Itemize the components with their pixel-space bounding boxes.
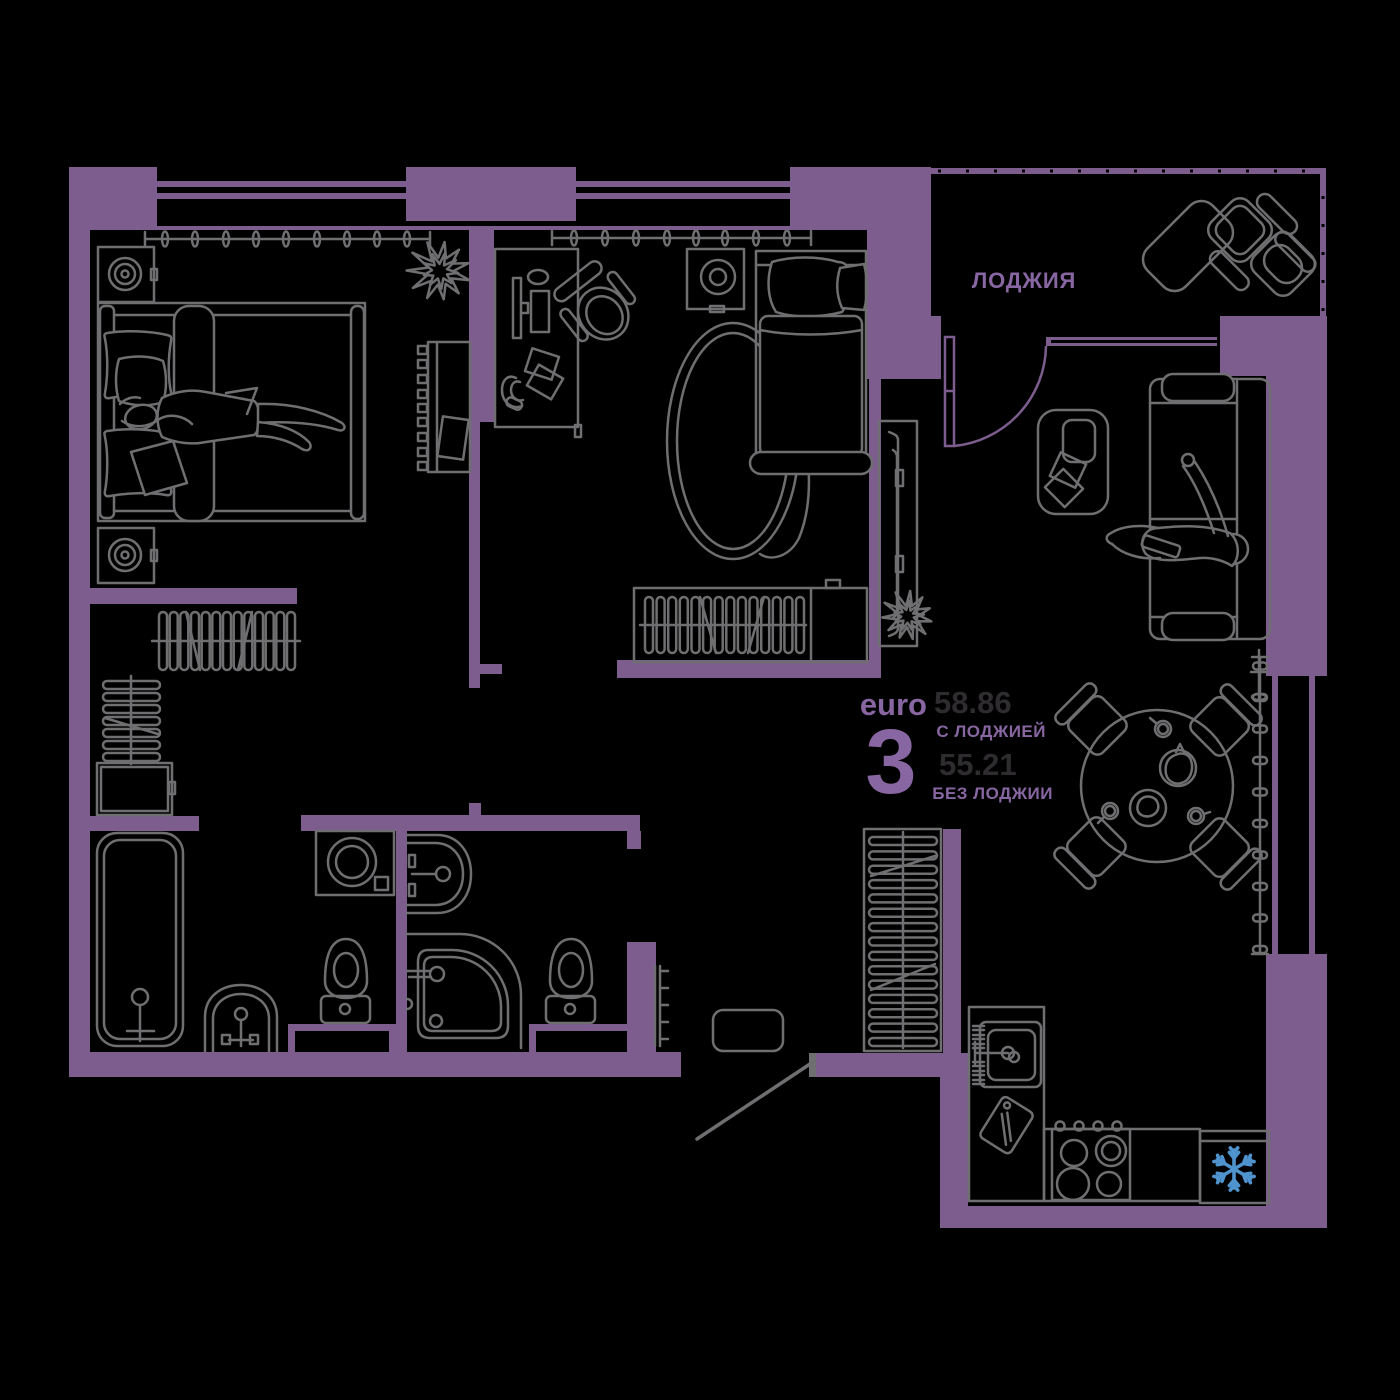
svg-text:С ЛОДЖИЕЙ: С ЛОДЖИЕЙ bbox=[936, 722, 1046, 741]
svg-text:3: 3 bbox=[865, 711, 916, 813]
svg-text:ЛОДЖИЯ: ЛОДЖИЯ bbox=[972, 268, 1076, 293]
svg-text:БЕЗ ЛОДЖИИ: БЕЗ ЛОДЖИИ bbox=[932, 784, 1053, 803]
svg-text:58.86: 58.86 bbox=[934, 685, 1012, 720]
svg-text:55.21: 55.21 bbox=[939, 747, 1017, 782]
